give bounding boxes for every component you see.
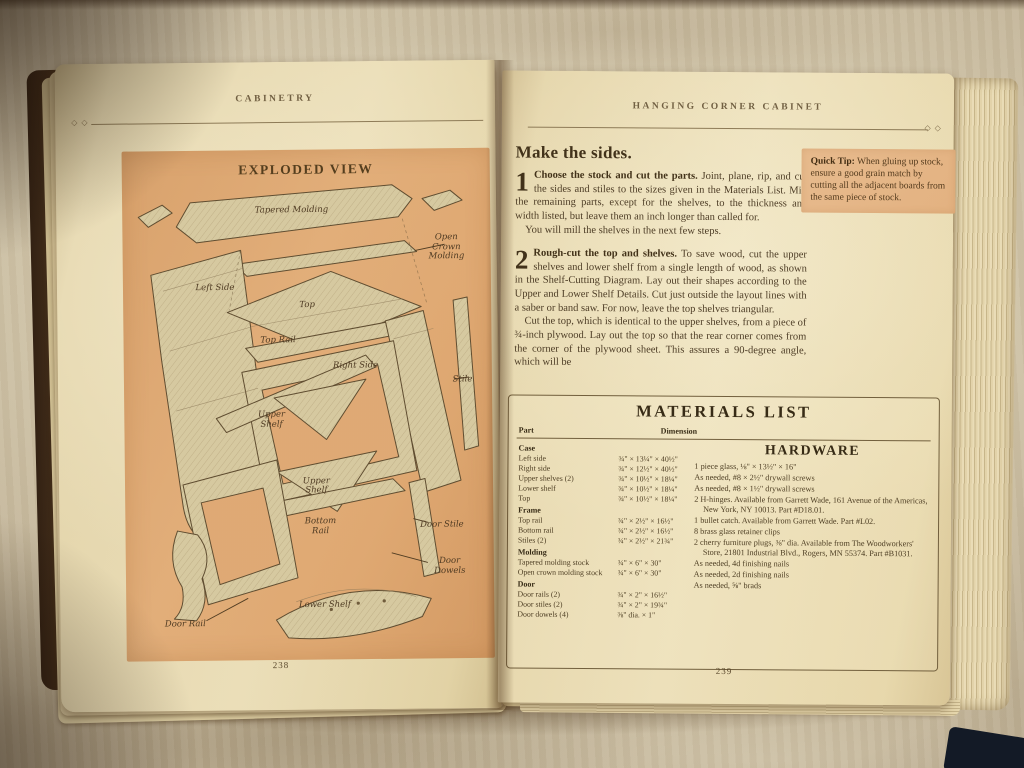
spine-shadow xyxy=(486,60,514,710)
instruction-steps: 1 Choose the stock and cut the parts. Jo… xyxy=(514,169,807,382)
diagram-label: Lower Shelf xyxy=(299,601,351,611)
diagram-label: Open Crown Molding xyxy=(424,233,468,261)
diagram-label: Left Side xyxy=(195,283,234,293)
diagram-label: Tapered Molding xyxy=(255,206,329,216)
column-part: Part xyxy=(519,426,534,435)
diagram-label: Bottom Rail xyxy=(305,517,337,536)
diagram-label: Door Dowels xyxy=(428,557,472,576)
diagram-label: Upper Shelf xyxy=(303,477,330,496)
hardware-item: 8 brass glass retainer clips xyxy=(694,527,930,539)
right-page: HANGING CORNER CABINET ◇ ◇ Make the side… xyxy=(498,70,954,705)
exploded-view-panel: EXPLODED VIEW xyxy=(122,148,495,662)
hardware-item: As needed, 4d finishing nails xyxy=(694,559,930,571)
materials-list-box: MATERIALS LIST Part Dimension CaseLeft s… xyxy=(506,394,940,671)
part-dimension: ¾" × 2" × 16½" xyxy=(618,590,708,601)
materials-row: Stiles (2)¾" × 2½" × 21¾" xyxy=(518,536,690,547)
diagram-label: Upper Shelf xyxy=(258,411,285,430)
hardware-item: 2 cherry furniture plugs, ⅜" dia. Availa… xyxy=(694,538,930,560)
running-head-left: CABINETRY xyxy=(55,92,495,107)
materials-row: Door dowels (4)⅜" dia. × 1" xyxy=(517,610,689,621)
running-head-right: HANGING CORNER CABINET xyxy=(502,100,954,113)
open-book: CABINETRY ◇ ◇ EXPLODED VIEW xyxy=(0,0,1024,768)
diamond-ornament-icon: ◇ ◇ xyxy=(71,118,88,127)
part-name: Left side xyxy=(518,454,546,463)
materials-rule xyxy=(517,438,931,442)
part-dimension: ¾" × 2" × 19¾" xyxy=(617,600,707,611)
quick-tip-label: Quick Tip: xyxy=(811,157,855,167)
left-page: CABINETRY ◇ ◇ EXPLODED VIEW xyxy=(55,60,502,713)
step-2: 2 Rough-cut the top and shelves. To save… xyxy=(514,247,807,372)
hardware-list: 1 piece glass, ⅛" × 13½" × 16"As needed,… xyxy=(694,462,931,593)
materials-row: Top¾" × 10½" × 18¼" xyxy=(518,494,690,505)
diagram-label: Top Rail xyxy=(260,336,295,346)
part-name: Tapered molding stock xyxy=(518,558,589,567)
step-number: 2 xyxy=(515,249,529,271)
section-heading: Make the sides. xyxy=(516,143,633,164)
materials-parts-table: CaseLeft side¾" × 13¼" × 40½"Right side¾… xyxy=(517,442,690,621)
part-name: Top rail xyxy=(518,516,542,525)
hardware-title: HARDWARE xyxy=(695,443,931,461)
hardware-item: 1 bullet catch. Available from Garrett W… xyxy=(694,516,930,528)
part-name: Door rails (2) xyxy=(518,590,560,599)
diagram-label: Stile xyxy=(453,375,473,385)
part-dimension: ⅜" dia. × 1" xyxy=(617,610,707,621)
diagram-label: Right Side xyxy=(333,361,378,371)
part-name: Door stiles (2) xyxy=(517,600,562,609)
part-name: Stiles (2) xyxy=(518,536,546,545)
materials-list-title: MATERIALS LIST xyxy=(509,400,939,423)
part-name: Bottom rail xyxy=(518,526,554,535)
hardware-section: HARDWARE 1 piece glass, ⅛" × 13½" × 16"A… xyxy=(694,443,931,594)
diamond-ornament-icon: ◇ ◇ xyxy=(924,123,941,132)
header-rule xyxy=(91,120,483,125)
step-text: Choose the stock and cut the parts. Join… xyxy=(515,169,807,226)
step-text-continued: You will mill the shelves in the next fe… xyxy=(515,223,807,239)
page-number-right: 239 xyxy=(498,664,950,677)
hardware-item: As needed, #8 × 2½" drywall screws xyxy=(694,473,930,485)
part-name: Upper shelves (2) xyxy=(518,474,573,483)
step-text-continued: Cut the top, which is identical to the u… xyxy=(514,315,806,372)
hardware-item: 2 H-hinges. Available from Garrett Wade,… xyxy=(694,495,930,517)
hardware-item: As needed, 2d finishing nails xyxy=(694,570,930,582)
step-text: Rough-cut the top and shelves. To save w… xyxy=(515,247,807,317)
diagram-label: Door Rail xyxy=(165,620,206,630)
header-rule xyxy=(528,127,928,131)
hardware-item: As needed, ⅝" brads xyxy=(694,581,930,593)
hardware-item: 1 piece glass, ⅛" × 13½" × 16" xyxy=(694,462,930,474)
part-name: Open crown molding stock xyxy=(518,568,603,578)
part-name: Lower shelf xyxy=(518,484,556,493)
hardware-item: As needed, #8 × 1½" drywall screws xyxy=(694,484,930,496)
part-name: Top xyxy=(518,494,530,503)
part-name: Right side xyxy=(518,464,550,473)
step-1: 1 Choose the stock and cut the parts. Jo… xyxy=(515,169,807,239)
part-name: Door dowels (4) xyxy=(517,610,568,619)
exploded-view-sketch xyxy=(122,148,495,662)
column-dimension: Dimension xyxy=(661,427,698,436)
photo-of-open-book: CABINETRY ◇ ◇ EXPLODED VIEW xyxy=(0,0,1024,768)
materials-row: Open crown molding stock¾" × 6" × 30" xyxy=(518,568,690,579)
diagram-label: Door Stile xyxy=(420,521,464,531)
quick-tip-box: Quick Tip: When gluing up stock, ensure … xyxy=(801,149,955,214)
materials-column-headers: Part Dimension xyxy=(519,426,929,438)
diagram-label: Top xyxy=(299,300,315,310)
step-number: 1 xyxy=(515,171,529,193)
